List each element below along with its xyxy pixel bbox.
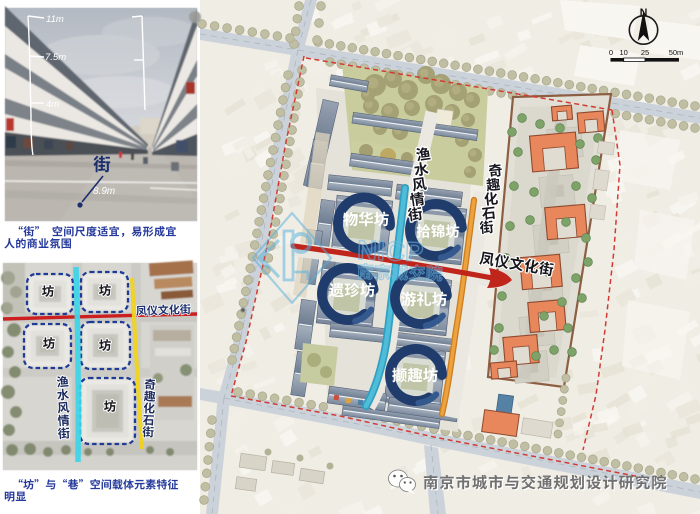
svg-text:25: 25 [641,48,649,57]
svg-text:4m: 4m [46,99,59,110]
svg-text:10: 10 [620,48,628,57]
svg-text:8.9m: 8.9m [93,186,115,197]
svg-text:N: N [640,7,648,19]
svg-text:0: 0 [609,48,613,57]
svg-text:NICP: NICP [357,235,425,267]
svg-text:7.5m: 7.5m [45,52,66,63]
svg-text:11m: 11m [46,14,64,25]
svg-text:50m: 50m [669,48,684,57]
